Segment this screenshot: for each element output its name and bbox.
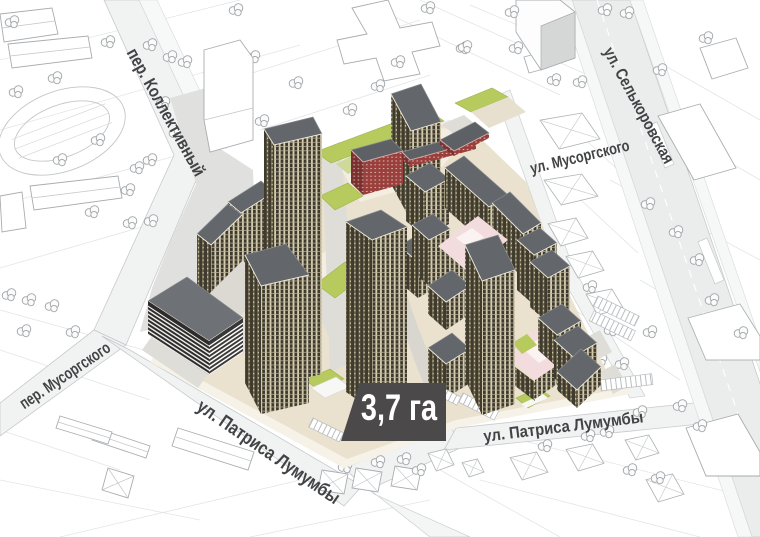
svg-text:3,7 га: 3,7 га: [361, 388, 438, 429]
